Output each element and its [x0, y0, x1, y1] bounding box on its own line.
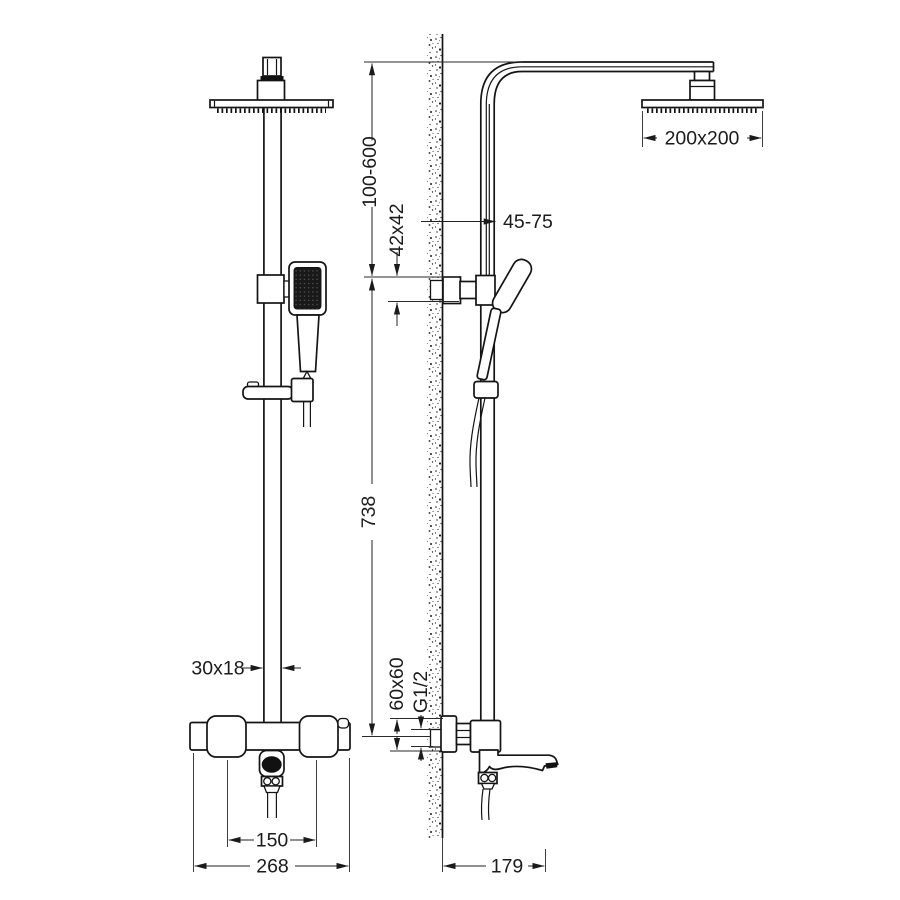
diverter-button	[338, 719, 349, 729]
dim-column-height: 738	[358, 279, 380, 736]
hose-clamp-front	[292, 379, 314, 402]
dim-mixer-width: 268	[195, 856, 349, 878]
head-connector-side	[690, 81, 715, 101]
hand-shower-face	[294, 268, 321, 310]
head-plate-front	[210, 100, 333, 108]
mixer-body-side	[471, 721, 501, 753]
bracket-wall-anchor	[431, 281, 443, 300]
dim-head-size: 200x200	[644, 128, 762, 150]
bracket-telescopic-arm	[460, 282, 477, 299]
slider-bar-front	[243, 387, 293, 400]
hand-shower-head-side	[489, 256, 534, 316]
connection-nut-side	[457, 724, 471, 745]
slider-ring-side	[474, 382, 498, 399]
hose-collar-front	[264, 786, 280, 793]
dim-riser-section: 30x18	[191, 658, 301, 680]
dim-riser-section-label: 30x18	[191, 658, 244, 680]
rain-head-side	[642, 72, 763, 111]
mixer-front	[190, 716, 350, 818]
hand-shower-handle-front	[297, 315, 319, 372]
mixer-handle-left	[207, 716, 246, 757]
dim-height-range-label: 100-600	[359, 136, 381, 208]
riser-and-arm-side	[481, 62, 714, 721]
dim-inlet-thread-label: G1/2	[410, 671, 432, 713]
mixer-side	[431, 716, 558, 820]
mixer-hose-side	[488, 789, 490, 820]
dim-bracket-section-label: 42x42	[386, 203, 408, 256]
side-view	[431, 62, 764, 820]
wall-escutcheon-side	[441, 716, 457, 752]
shower-system-technical-drawing: 100-600 42x42 45-75 200x200 738	[0, 0, 900, 900]
front-view	[190, 58, 350, 819]
outlet-opening	[262, 756, 282, 772]
bracket-base	[443, 277, 461, 304]
dim-spout-reach: 179	[444, 856, 545, 878]
hose-collar-side	[482, 784, 495, 790]
dim-inlet-spacing: 150	[229, 830, 316, 852]
head-swivel-neck-side	[695, 72, 710, 81]
spout-outlet	[546, 762, 558, 769]
technical-drawing-page: 100-600 42x42 45-75 200x200 738	[0, 0, 900, 900]
wall-section	[427, 34, 443, 838]
bath-spout	[480, 750, 558, 773]
dim-inlet-spacing-label: 150	[256, 830, 289, 852]
dim-wall-clearance-label: 45-75	[503, 211, 553, 233]
dim-mixer-width-label: 268	[256, 856, 289, 878]
head-connector-front	[258, 81, 285, 101]
dim-escutcheon-size-label: 60x60	[386, 657, 408, 710]
hand-shower-front	[243, 262, 326, 427]
mixer-handle-right	[300, 716, 339, 757]
dim-escutcheon-size: 60x60	[386, 657, 408, 750]
dim-head-size-label: 200x200	[665, 128, 740, 150]
dim-bracket-section: 42x42	[386, 203, 408, 326]
holder-clamp-upper	[258, 275, 285, 303]
rain-head-front	[210, 58, 333, 111]
wall-hatch	[427, 34, 443, 838]
dim-column-height-label: 738	[358, 496, 380, 529]
dim-height-range: 100-600	[359, 64, 381, 276]
head-swivel-neck-front	[263, 58, 281, 77]
head-plate-side	[642, 100, 763, 108]
mixer-hose-side	[481, 789, 483, 820]
dim-spout-reach-label: 179	[491, 856, 524, 878]
